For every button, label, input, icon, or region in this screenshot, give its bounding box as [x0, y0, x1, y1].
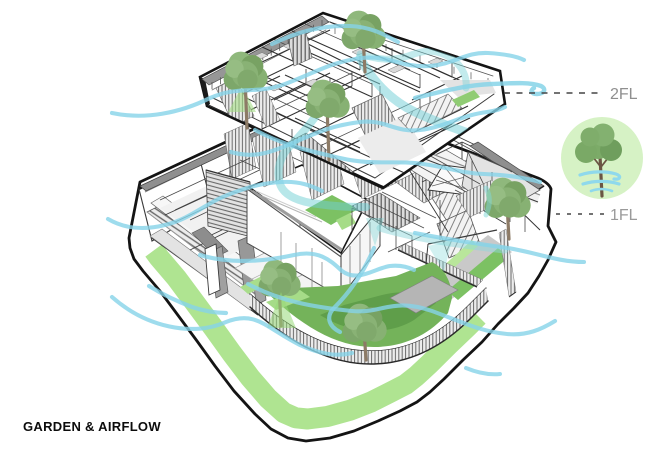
svg-text:GARDEN & AIRFLOW: GARDEN & AIRFLOW	[23, 419, 161, 434]
svg-text:2FL: 2FL	[610, 86, 638, 103]
svg-text:1FL: 1FL	[610, 207, 638, 224]
